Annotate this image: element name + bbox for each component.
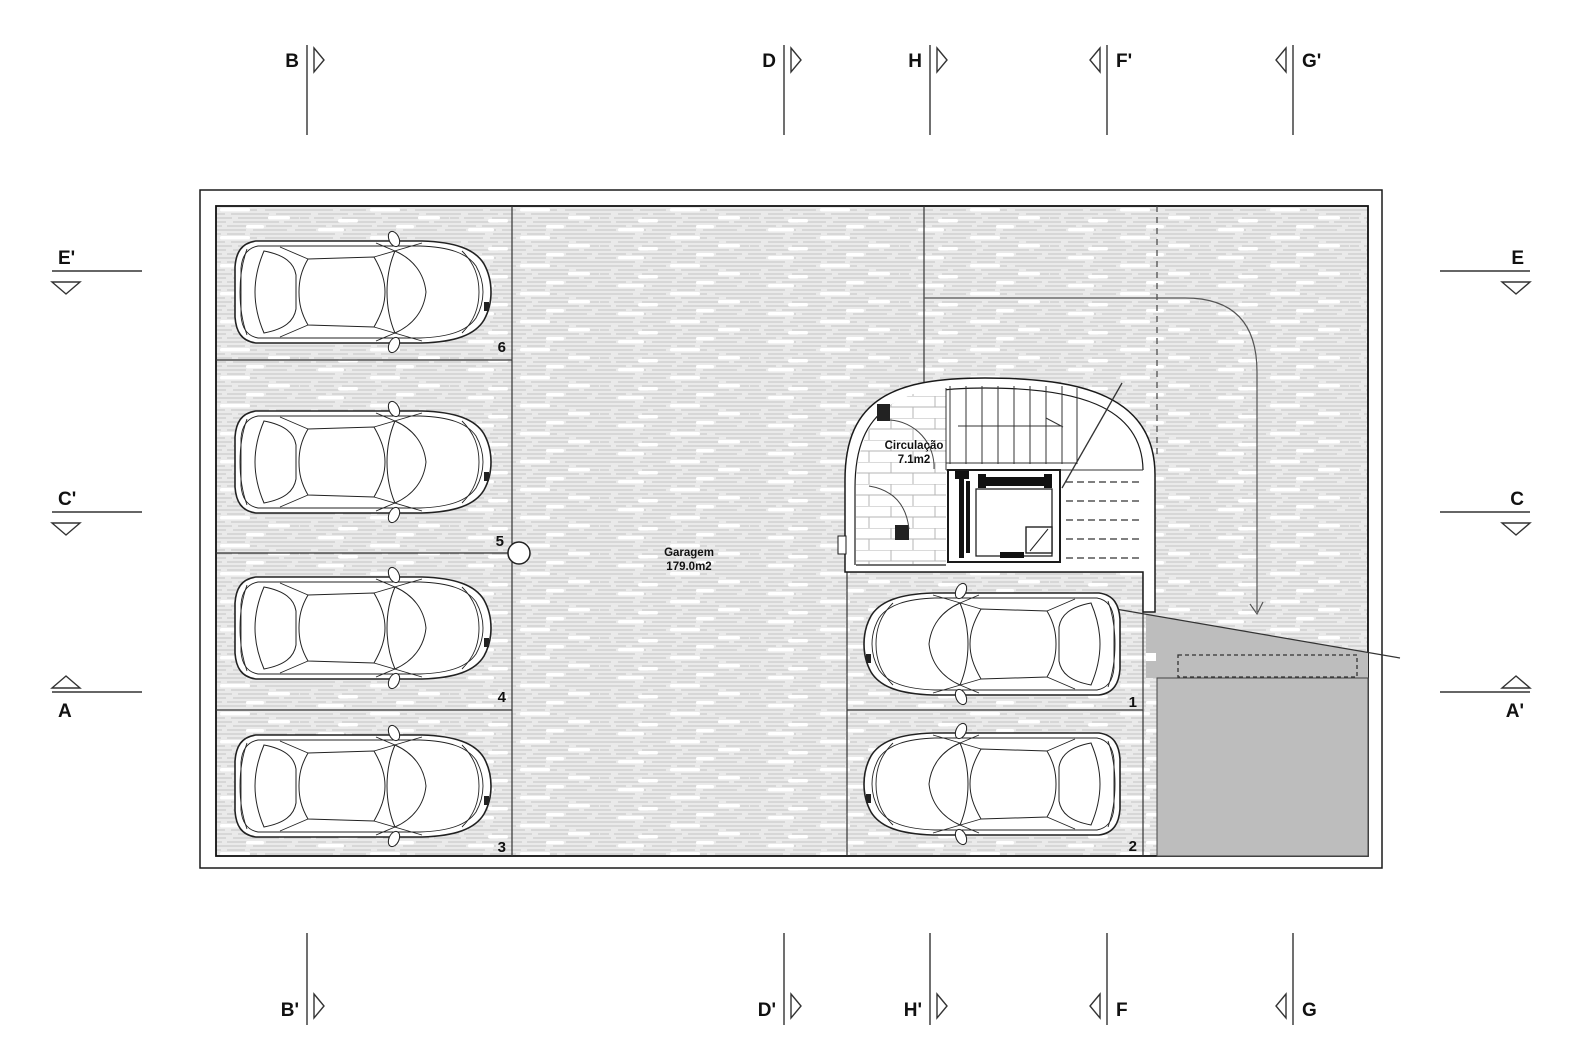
section-label-g: G: [1302, 1000, 1317, 1021]
elevator-door-mechanism: [984, 477, 1046, 486]
floor-plan-page: 6 5 4 3 1 2 Garagem 179.0m2 Circulação 7…: [0, 0, 1572, 1058]
car-1: [864, 582, 1120, 707]
circulation-room-area: 7.1m2: [898, 454, 931, 466]
section-arrow-a: [52, 676, 80, 688]
section-markers-left: [52, 271, 142, 692]
section-arrow-c: [1502, 523, 1530, 535]
wall-step: [838, 536, 846, 554]
ramp-landing: [1146, 655, 1368, 678]
section-markers-top: [307, 45, 1293, 135]
section-arrow-e-prime: [52, 282, 80, 294]
elevator: [948, 470, 1060, 562]
section-label-c-prime: C': [58, 489, 76, 510]
car-2: [864, 722, 1120, 847]
garage-room-area: 179.0m2: [666, 561, 711, 573]
section-arrow-f-prime: [1090, 48, 1100, 72]
section-arrow-c-prime: [52, 523, 80, 535]
section-arrow-g-prime: [1276, 48, 1286, 72]
car-6: [235, 230, 491, 355]
stall-label-3: 3: [498, 839, 506, 856]
section-label-a-prime: A': [1506, 701, 1524, 722]
elevator-sill: [1000, 552, 1024, 558]
ramp-pit: [1157, 678, 1368, 856]
stall-label-2: 2: [1129, 838, 1137, 855]
section-arrow-b: [314, 48, 324, 72]
stall-label-4: 4: [498, 689, 507, 706]
section-arrow-b-prime: [314, 994, 324, 1018]
section-label-e-prime: E': [58, 248, 75, 269]
section-label-c: C: [1510, 489, 1524, 510]
stall-label-5: 5: [496, 533, 504, 550]
section-arrow-f: [1090, 994, 1100, 1018]
section-arrow-g: [1276, 994, 1286, 1018]
stall-label-1: 1: [1129, 694, 1137, 711]
section-arrow-d-prime: [791, 994, 801, 1018]
section-label-h-prime: H': [904, 1000, 922, 1021]
section-arrow-h: [937, 48, 947, 72]
column: [508, 542, 530, 564]
section-label-f-prime: F': [1116, 51, 1132, 72]
section-label-h: H: [908, 51, 922, 72]
floor-plan-svg: 6 5 4 3 1 2 Garagem 179.0m2 Circulação 7…: [0, 0, 1572, 1058]
section-markers-bottom: [307, 933, 1293, 1025]
garage-plan: 6 5 4 3 1 2 Garagem 179.0m2 Circulação 7…: [200, 190, 1400, 868]
ramp: [1146, 614, 1368, 856]
section-arrow-a-prime: [1502, 676, 1530, 688]
door-jamb-lower: [895, 525, 909, 540]
ramp-notch: [1146, 653, 1156, 661]
garage-room-name: Garagem: [664, 547, 714, 559]
car-4: [235, 566, 491, 691]
section-label-f: F: [1116, 1000, 1128, 1021]
stall-label-6: 6: [498, 339, 506, 356]
elevator-guide-rail-2: [966, 481, 970, 553]
door-jamb-upper: [877, 404, 890, 421]
section-label-b-prime: B': [281, 1000, 299, 1021]
section-arrow-h-prime: [937, 994, 947, 1018]
section-label-d: D: [762, 51, 776, 72]
car-5: [235, 400, 491, 525]
section-arrow-e: [1502, 282, 1530, 294]
section-arrow-d: [791, 48, 801, 72]
section-label-g-prime: G': [1302, 51, 1321, 72]
section-markers-right: [1440, 271, 1530, 692]
car-3: [235, 724, 491, 849]
section-label-e: E: [1511, 248, 1524, 269]
elevator-guide-rail: [959, 476, 964, 558]
section-label-d-prime: D': [758, 1000, 776, 1021]
section-label-a: A: [58, 701, 72, 722]
circulation-room-name: Circulação: [885, 440, 944, 452]
section-label-b: B: [285, 51, 299, 72]
